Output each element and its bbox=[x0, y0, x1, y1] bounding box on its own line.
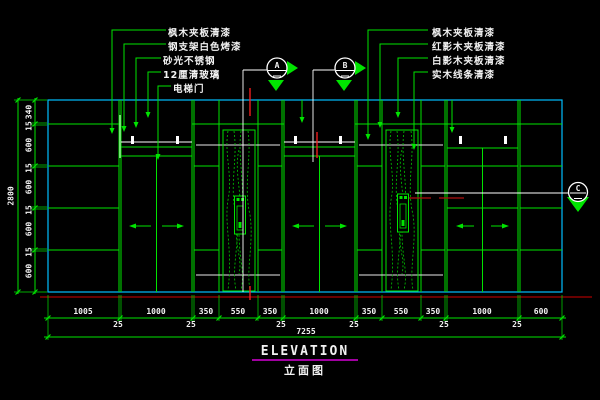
dim-v-seg-1: 340 bbox=[25, 105, 34, 119]
dim-h-seg-3: 350 bbox=[199, 307, 213, 316]
left-label-3: 砂光不锈钢 bbox=[163, 53, 216, 67]
elevator-door-1 bbox=[121, 136, 192, 292]
dim-h-total: 7255 bbox=[296, 327, 315, 336]
title-underline bbox=[252, 359, 358, 361]
wood-grain-panel-1 bbox=[223, 130, 255, 291]
dim-h-joint-5: 25 bbox=[439, 320, 449, 329]
dim-h-seg-10: 1000 bbox=[472, 307, 491, 316]
leader-lines-right bbox=[302, 30, 452, 144]
dim-h-seg-6: 1000 bbox=[309, 307, 328, 316]
right-label-4: 实木线条清漆 bbox=[432, 67, 495, 81]
dim-h-seg-2: 1000 bbox=[146, 307, 165, 316]
drawing-title: ELEVATION bbox=[230, 344, 380, 359]
dim-v-seg-5: 600 bbox=[25, 264, 34, 278]
drawing-subtitle: 立面图 bbox=[230, 362, 380, 378]
dim-v-joint-3: 15 bbox=[25, 205, 34, 215]
panel-1-handle bbox=[235, 196, 246, 234]
panel-2-handle bbox=[398, 194, 409, 232]
leader-arrows-left bbox=[110, 112, 161, 160]
section-marker-c-letter: C bbox=[570, 184, 586, 193]
dim-v-seg-3: 600 bbox=[25, 180, 34, 194]
dim-v-joint-1: 15 bbox=[25, 121, 34, 131]
right-label-1: 枫木夹板清漆 bbox=[432, 25, 495, 39]
wood-grain-panel-2 bbox=[386, 130, 418, 291]
dim-h-seg-11: 600 bbox=[534, 307, 548, 316]
dim-h-joint-4: 25 bbox=[349, 320, 359, 329]
leader-arrows-right bbox=[300, 112, 455, 150]
section-marker-b-letter: B bbox=[337, 61, 353, 70]
dim-v-seg-4: 600 bbox=[25, 222, 34, 236]
dim-v-joint-2: 15 bbox=[25, 163, 34, 173]
elevator-door-2 bbox=[284, 136, 355, 292]
right-label-3: 白影木夹板清漆 bbox=[432, 53, 506, 67]
dim-h-seg-9: 350 bbox=[426, 307, 440, 316]
cad-elevation-drawing-canvas[interactable]: 枫木夹板清漆 钢支架白色烤漆 砂光不锈钢 12厘清玻璃 电梯门 枫木夹板清漆 红… bbox=[0, 0, 600, 400]
dim-h-joint-3: 25 bbox=[276, 320, 286, 329]
drawing-linework bbox=[0, 0, 600, 400]
dim-h-joint-2: 25 bbox=[186, 320, 196, 329]
dim-h-joint-6: 25 bbox=[512, 320, 522, 329]
dim-v-total: 2800 bbox=[7, 186, 16, 205]
left-label-4: 12厘清玻璃 bbox=[163, 67, 220, 81]
wall-panel-bands bbox=[48, 124, 562, 292]
left-label-2: 钢支架白色烤漆 bbox=[168, 39, 242, 53]
section-cut-lines bbox=[120, 70, 568, 292]
dim-h-joint-1: 25 bbox=[113, 320, 123, 329]
dim-h-seg-1: 1005 bbox=[73, 307, 92, 316]
section-marker-a-letter: A bbox=[269, 61, 285, 70]
dim-h-seg-5: 350 bbox=[263, 307, 277, 316]
dim-v-joint-4: 15 bbox=[25, 247, 34, 257]
left-label-5: 电梯门 bbox=[173, 81, 205, 95]
dim-v-seg-2: 600 bbox=[25, 138, 34, 152]
dim-h-seg-7: 350 bbox=[362, 307, 376, 316]
left-label-1: 枫木夹板清漆 bbox=[168, 25, 231, 39]
dim-h-seg-8: 550 bbox=[394, 307, 408, 316]
dim-h-seg-4: 550 bbox=[231, 307, 245, 316]
right-label-2: 红影木夹板清漆 bbox=[432, 39, 506, 53]
